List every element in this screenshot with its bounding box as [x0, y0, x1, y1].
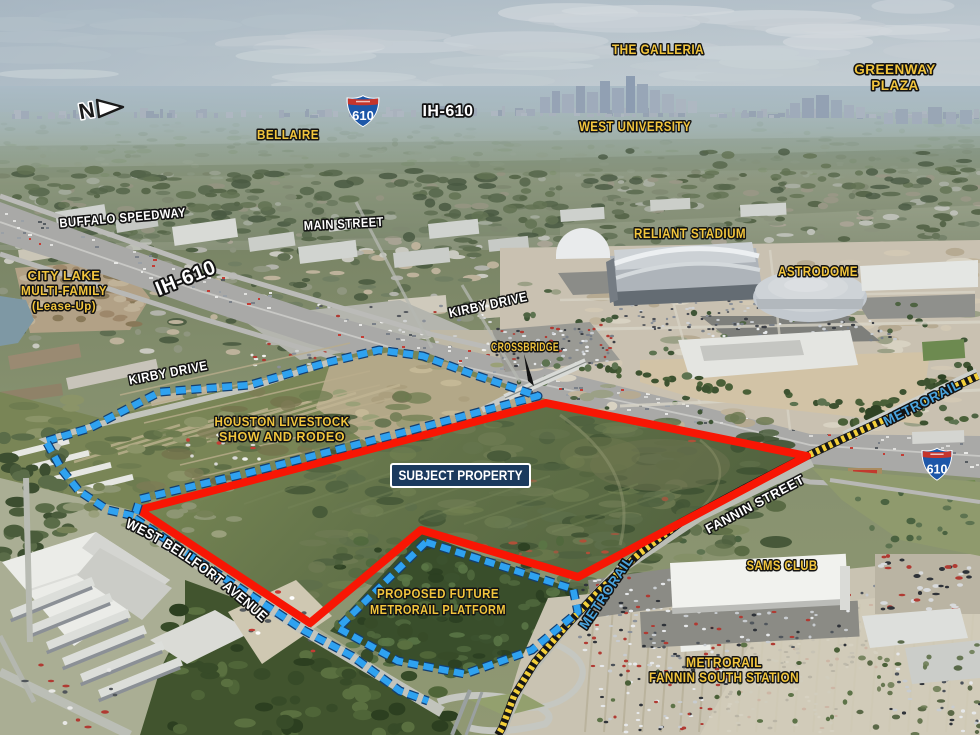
svg-text:CITY LAKE: CITY LAKE	[28, 268, 101, 283]
svg-text:GREENWAY: GREENWAY	[854, 62, 936, 77]
svg-text:METRORAIL PLATFORM: METRORAIL PLATFORM	[370, 602, 506, 617]
svg-text:CROSSBRIDGE: CROSSBRIDGE	[491, 342, 559, 354]
svg-text:BELLAIRE: BELLAIRE	[257, 127, 319, 142]
svg-text:ASTRODOME: ASTRODOME	[778, 264, 858, 279]
svg-text:610: 610	[927, 462, 948, 476]
svg-text:SAMS CLUB: SAMS CLUB	[747, 558, 818, 573]
svg-text:610: 610	[352, 108, 374, 123]
svg-text:METRORAIL: METRORAIL	[686, 655, 762, 670]
svg-text:THE GALLERIA: THE GALLERIA	[612, 42, 704, 57]
svg-text:RELIANT STADIUM: RELIANT STADIUM	[634, 226, 746, 241]
svg-text:SUBJECT PROPERTY: SUBJECT PROPERTY	[399, 468, 523, 483]
svg-text:MULTI-FAMILY: MULTI-FAMILY	[21, 283, 107, 298]
svg-text:WEST UNIVERSITY: WEST UNIVERSITY	[579, 119, 691, 134]
svg-text:SHOW AND RODEO: SHOW AND RODEO	[219, 429, 345, 444]
svg-text:IH-610: IH-610	[422, 103, 473, 120]
svg-text:PROPOSED FUTURE: PROPOSED FUTURE	[377, 586, 499, 601]
svg-text:FANNIN SOUTH STATION: FANNIN SOUTH STATION	[649, 670, 799, 685]
svg-text:HOUSTON LIVESTOCK: HOUSTON LIVESTOCK	[215, 414, 350, 429]
svg-text:(Lease-Up): (Lease-Up)	[32, 299, 96, 313]
svg-text:PLAZA: PLAZA	[871, 78, 919, 93]
